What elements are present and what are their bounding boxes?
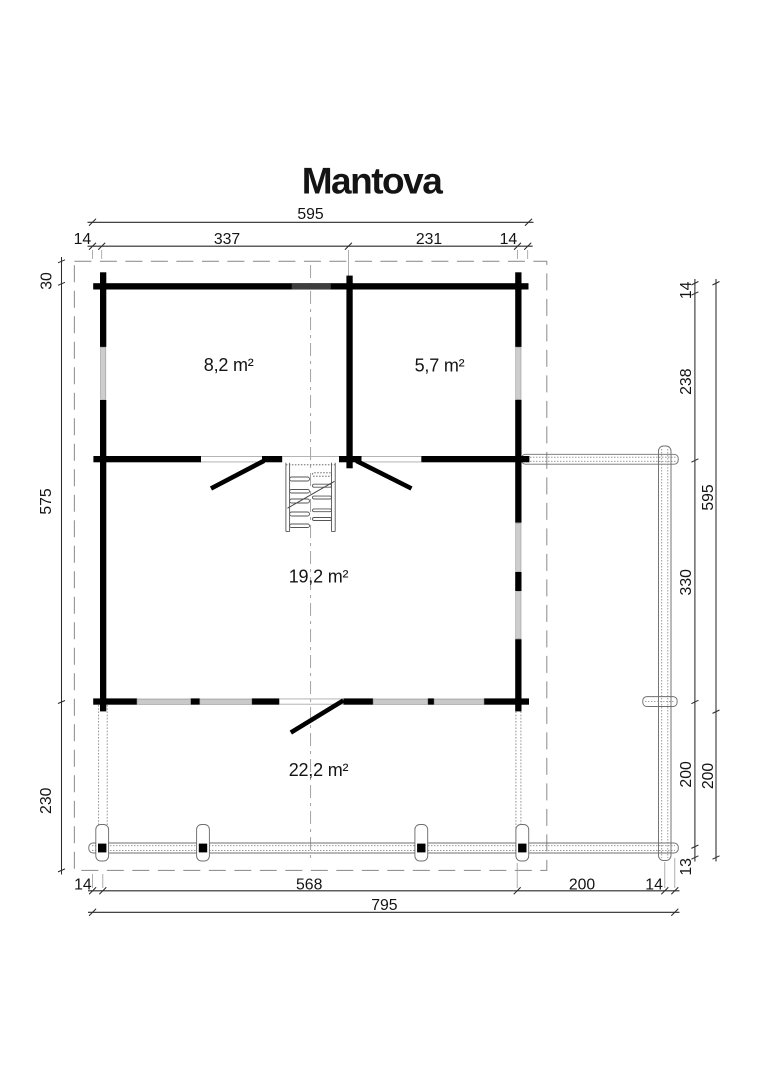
svg-text:200: 200 xyxy=(678,761,695,788)
svg-text:568: 568 xyxy=(296,876,323,893)
svg-text:795: 795 xyxy=(371,897,398,914)
svg-text:200: 200 xyxy=(569,876,596,893)
svg-text:575: 575 xyxy=(38,488,55,515)
svg-text:595: 595 xyxy=(297,206,324,223)
svg-text:Mantova: Mantova xyxy=(302,160,444,201)
svg-text:14: 14 xyxy=(74,876,92,893)
svg-text:19,2 m²: 19,2 m² xyxy=(289,567,349,587)
svg-text:8,2 m²: 8,2 m² xyxy=(204,355,254,375)
svg-text:230: 230 xyxy=(38,787,55,814)
svg-text:30: 30 xyxy=(39,272,56,290)
svg-text:14: 14 xyxy=(74,231,92,248)
svg-text:595: 595 xyxy=(700,484,717,511)
svg-text:14: 14 xyxy=(678,281,695,299)
svg-text:22,2 m²: 22,2 m² xyxy=(289,760,349,780)
svg-text:14: 14 xyxy=(645,876,663,893)
svg-text:200: 200 xyxy=(700,763,717,790)
svg-text:231: 231 xyxy=(416,231,443,248)
svg-text:337: 337 xyxy=(214,231,240,248)
svg-text:14: 14 xyxy=(500,231,518,248)
svg-text:13: 13 xyxy=(678,858,695,876)
svg-text:330: 330 xyxy=(678,569,695,596)
svg-text:238: 238 xyxy=(678,368,695,395)
svg-text:5,7 m²: 5,7 m² xyxy=(415,356,465,376)
